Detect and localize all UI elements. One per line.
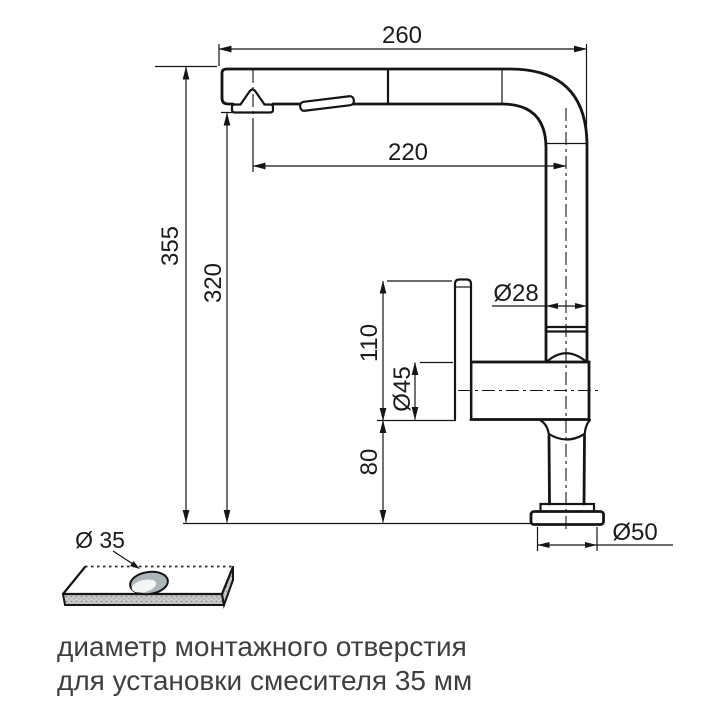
dim-arrow-right <box>585 542 597 548</box>
caption: диаметр монтажного отверстия для установ… <box>57 631 472 696</box>
dim-mounting-hole: Ø 35 <box>75 527 140 569</box>
dim-label-d28: Ø28 <box>493 280 538 307</box>
dim-label-d35: Ø 35 <box>75 527 125 553</box>
dim-arrow-left <box>546 303 558 309</box>
mounting-plate <box>63 567 233 606</box>
dim-label-80: 80 <box>356 449 383 476</box>
dim-arrow-left <box>538 542 550 548</box>
drawing-page: 260 220 355 320 110 Ø45 80 Ø28 <box>0 0 720 720</box>
caption-line-2: для установки смесителя 35 мм <box>57 665 472 696</box>
base-flange <box>531 512 604 525</box>
dim-label-110: 110 <box>356 324 383 362</box>
caption-line-1: диаметр монтажного отверстия <box>57 631 467 662</box>
column-left-edge <box>549 437 550 504</box>
handle-lever <box>455 280 471 420</box>
dim-spout-height: 320 <box>200 113 246 523</box>
dim-label-d50: Ø50 <box>612 519 657 546</box>
handle-lever-outline <box>455 280 471 420</box>
faucet <box>183 69 604 525</box>
dim-body-diameter: Ø45 <box>389 363 453 420</box>
column-right-edge <box>584 437 585 504</box>
dim-label-220: 220 <box>388 139 428 166</box>
dim-lower-body-height: 80 <box>356 421 383 523</box>
dim-label-260: 260 <box>382 22 422 49</box>
dim-arrow-right <box>575 303 587 309</box>
dim-spout-inner-reach: 220 <box>253 119 566 172</box>
dim-label-355: 355 <box>157 226 184 266</box>
dim-label-320: 320 <box>200 263 227 303</box>
plate-front-face <box>63 594 224 605</box>
spray-button <box>300 96 355 112</box>
neck-fillet-curve <box>549 434 585 440</box>
neck-left-flare <box>540 420 549 437</box>
spout-outline-bottom-left <box>222 98 233 104</box>
technical-drawing: 260 220 355 320 110 Ø45 80 Ø28 <box>0 0 720 720</box>
dim-label-d45: Ø45 <box>389 366 416 411</box>
dim-riser-diameter: Ø28 <box>492 280 587 309</box>
dim-spout-reach: 260 <box>219 22 587 142</box>
